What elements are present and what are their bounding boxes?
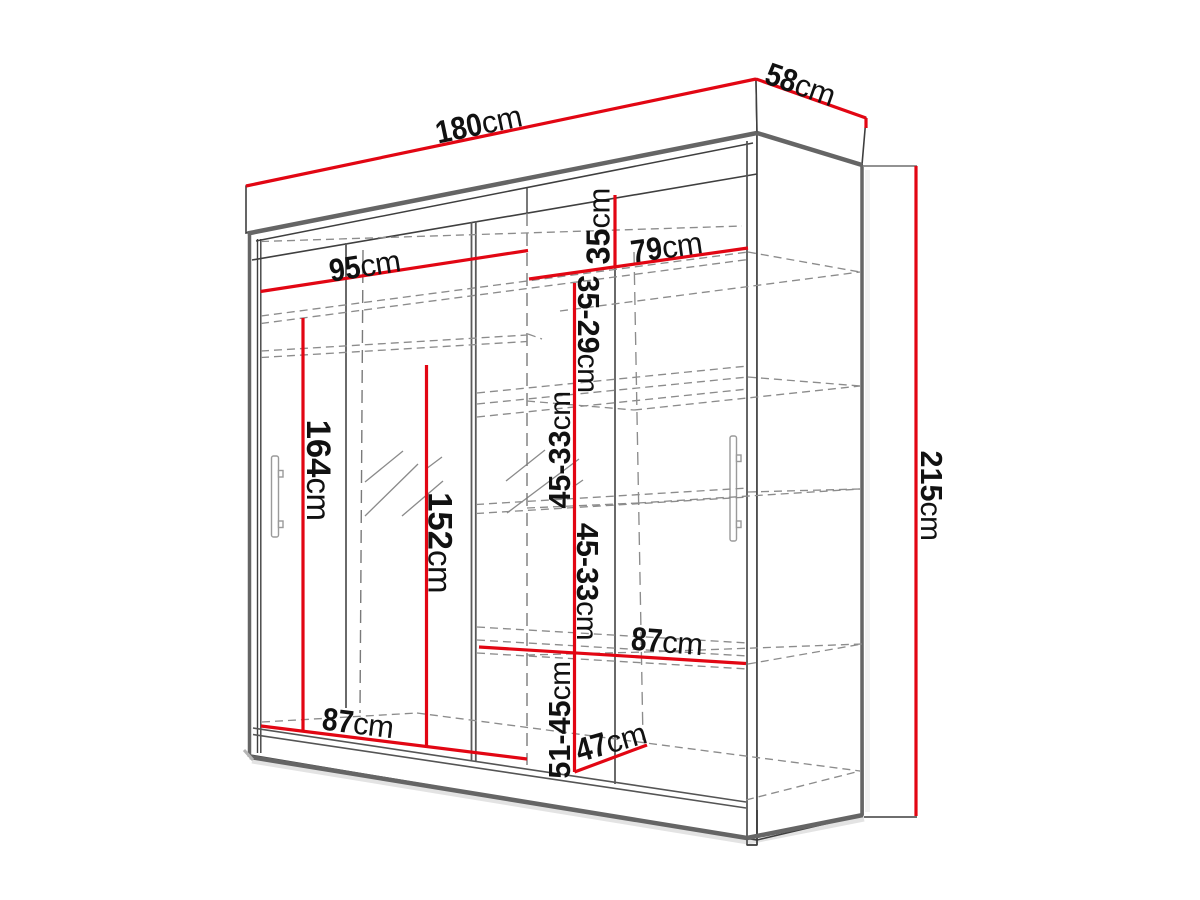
svg-text:45-33cm: 45-33cm <box>570 523 605 640</box>
svg-text:51-45cm: 51-45cm <box>542 661 577 778</box>
svg-text:152cm: 152cm <box>421 492 459 593</box>
svg-text:45-33cm: 45-33cm <box>542 391 577 508</box>
svg-text:215cm: 215cm <box>914 451 949 541</box>
svg-text:35cm: 35cm <box>580 188 617 264</box>
svg-text:164cm: 164cm <box>299 420 337 521</box>
svg-text:35-29cm: 35-29cm <box>571 275 606 392</box>
svg-text:87cm: 87cm <box>630 620 704 662</box>
